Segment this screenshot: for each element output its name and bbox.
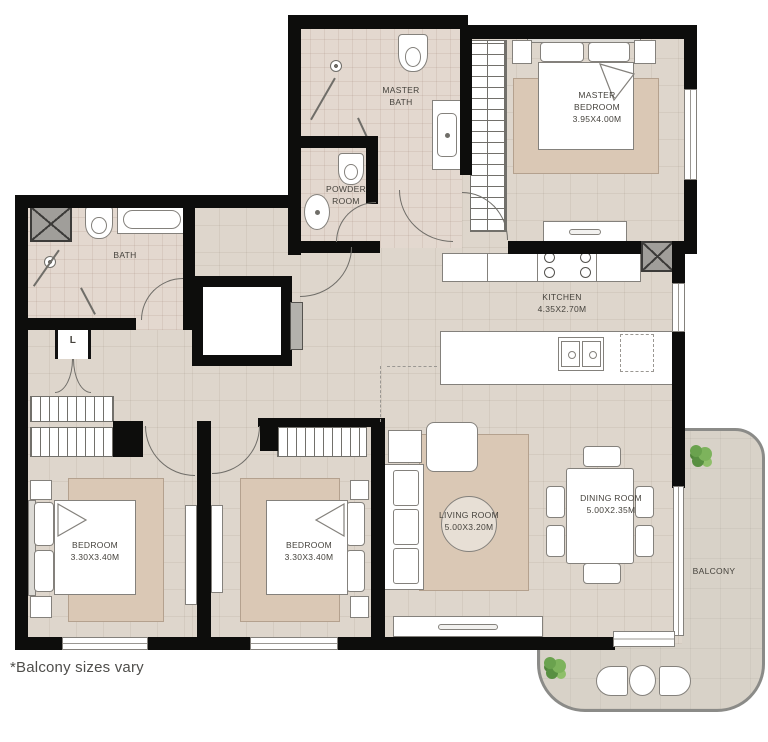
balcony-table	[629, 665, 656, 696]
floor-entry	[192, 208, 301, 253]
nightstand	[350, 596, 369, 618]
dashed-line	[387, 366, 437, 367]
room-label-laundry: L	[63, 334, 83, 348]
wardrobe-bedroom-2	[277, 427, 367, 457]
bed-fold	[314, 502, 346, 538]
wall	[684, 178, 697, 254]
dresser	[543, 221, 627, 242]
burner-icon	[544, 267, 555, 278]
room-label-powder-room: POWDER ROOM	[321, 184, 371, 208]
door-panel	[185, 505, 197, 605]
wall	[113, 421, 143, 457]
pillow	[346, 550, 365, 592]
nightstand	[350, 480, 369, 500]
dashed-line	[380, 366, 381, 422]
room-label-balcony: BALCONY	[684, 566, 744, 578]
wall	[371, 418, 385, 640]
wall	[460, 39, 472, 175]
wall	[288, 15, 468, 29]
sink-basin	[582, 341, 601, 367]
wall	[197, 421, 211, 650]
service-shaft	[641, 241, 674, 272]
tv-console	[393, 616, 543, 637]
window	[250, 637, 338, 650]
burner-icon	[580, 267, 591, 278]
dishwasher-outline	[620, 334, 654, 372]
wall	[508, 241, 641, 254]
nightstand	[30, 480, 52, 500]
balcony-chair	[659, 666, 691, 696]
sofa-cushion	[393, 548, 419, 584]
dining-chair	[583, 446, 621, 467]
room-label-bath: BATH	[103, 250, 147, 262]
wall	[684, 25, 697, 91]
bathtub-icon	[117, 205, 187, 234]
sink-basin	[561, 341, 580, 367]
toilet-icon	[398, 34, 428, 72]
room-label-dining-room: DINING ROOM5.00X2.35M	[572, 493, 650, 517]
bathroom-sink-icon	[432, 100, 462, 170]
window	[613, 631, 675, 647]
pillow	[346, 502, 365, 546]
bed-fold	[56, 502, 88, 538]
dining-chair	[635, 525, 654, 557]
room-label-master-bath: MASTER BATH	[377, 85, 425, 109]
room-label-kitchen: KITCHEN4.35X2.70M	[520, 292, 604, 316]
plant-icon	[690, 445, 702, 457]
wall	[15, 195, 28, 650]
side-table	[388, 430, 422, 463]
plant-icon	[544, 657, 556, 669]
shower-head-icon	[330, 60, 342, 72]
wall	[260, 421, 278, 451]
balcony-chair	[596, 666, 628, 696]
wall	[183, 206, 195, 330]
door-panel	[211, 505, 223, 593]
wall	[460, 25, 697, 39]
window	[672, 283, 685, 332]
room-label-master-bedroom: MASTER BEDROOM3.95X4.00M	[567, 90, 627, 126]
pillow	[588, 42, 630, 62]
nightstand	[512, 40, 532, 64]
sofa-cushion	[393, 470, 419, 506]
sofa-cushion	[393, 509, 419, 545]
dining-chair	[546, 525, 565, 557]
wall	[15, 195, 301, 208]
hall-closet	[30, 396, 114, 422]
nightstand	[634, 40, 656, 64]
service-core-void	[203, 287, 281, 355]
wall	[15, 637, 62, 650]
toilet-icon	[85, 206, 113, 239]
fridge	[442, 253, 488, 282]
balcony-disclaimer-note: *Balcony sizes vary	[10, 659, 144, 676]
closet-divider-line	[505, 40, 507, 232]
kitchen-sink-icon	[558, 337, 604, 371]
service-shaft	[30, 206, 72, 242]
pillow	[34, 550, 54, 592]
window	[684, 89, 697, 180]
window	[62, 637, 148, 650]
pillow	[34, 502, 54, 546]
armchair	[426, 422, 478, 472]
wardrobe-bedroom-1	[30, 427, 113, 457]
room-label-bedroom-1: BEDROOM3.30X3.40M	[63, 540, 127, 564]
balcony-sliding-door	[673, 486, 684, 636]
wall	[672, 330, 685, 488]
nightstand	[30, 596, 52, 618]
pillow	[540, 42, 584, 62]
toilet-icon	[338, 153, 364, 185]
dining-chair	[583, 563, 621, 584]
dining-chair	[546, 486, 565, 518]
wall	[288, 15, 301, 255]
wall	[288, 136, 378, 148]
wall	[28, 318, 136, 330]
room-label-bedroom-2: BEDROOM3.30X3.40M	[277, 540, 341, 564]
service-core-panel	[290, 302, 303, 350]
wall	[672, 241, 685, 285]
floor-plan: MASTER BATH MASTER BEDROOM3.95X4.00M POW…	[0, 0, 768, 742]
room-label-living-room: LIVING ROOM5.00X3.20M	[432, 510, 506, 534]
